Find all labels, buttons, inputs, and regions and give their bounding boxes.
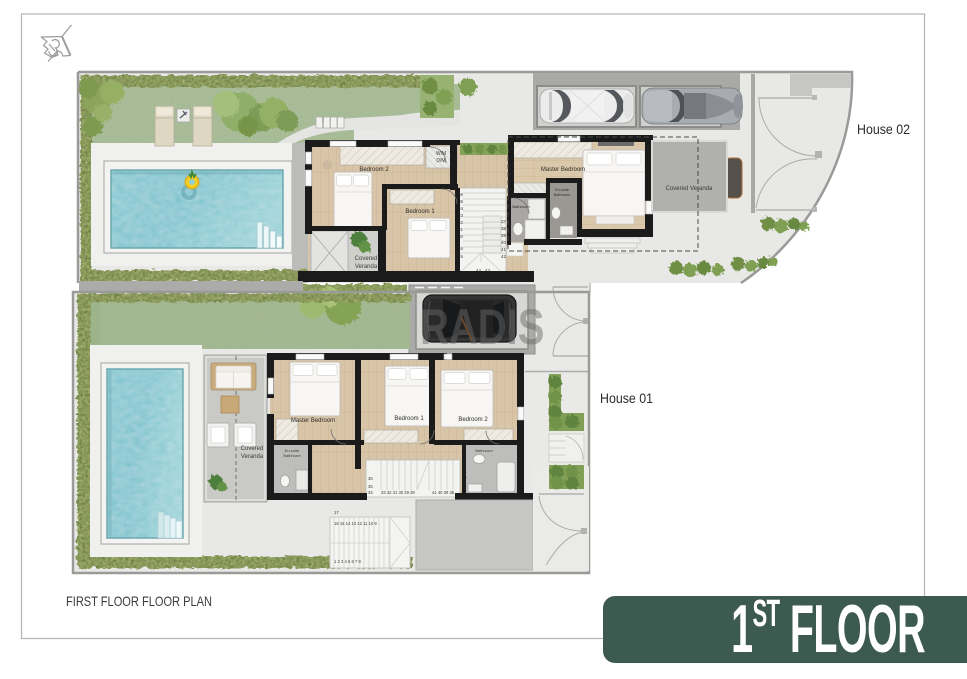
- svg-text:33 32 31 30 29 28: 33 32 31 30 29 28: [381, 490, 415, 495]
- svg-text:34: 34: [368, 490, 373, 495]
- svg-text:42: 42: [501, 254, 507, 259]
- svg-text:36: 36: [368, 476, 373, 481]
- svg-text:Bedroom 1: Bedroom 1: [405, 209, 435, 215]
- svg-text:Veranda: Veranda: [355, 264, 378, 270]
- svg-text:17: 17: [334, 510, 339, 515]
- svg-text:41: 41: [501, 247, 507, 252]
- svg-text:Covered: Covered: [241, 446, 264, 452]
- svg-text:Bedroom 2: Bedroom 2: [359, 167, 389, 173]
- svg-text:1 2 3 4 5 6 7 8: 1 2 3 4 5 6 7 8: [334, 559, 361, 564]
- svg-text:41 40 39 38: 41 40 39 38: [432, 490, 455, 495]
- svg-text:16 15 14 13 12 11 10 9: 16 15 14 13 12 11 10 9: [334, 521, 377, 526]
- svg-text:40: 40: [501, 240, 507, 245]
- svg-text:Bathroom: Bathroom: [475, 448, 493, 453]
- svg-text:Covered: Covered: [355, 256, 378, 262]
- svg-text:37: 37: [501, 219, 507, 224]
- svg-text:Master Bedroom: Master Bedroom: [541, 167, 585, 173]
- svg-text:Master Bedroom: Master Bedroom: [291, 418, 335, 424]
- svg-text:39: 39: [501, 233, 507, 238]
- svg-text:Bedroom 1: Bedroom 1: [394, 416, 424, 422]
- svg-text:Bathroom: Bathroom: [283, 453, 301, 458]
- svg-text:35: 35: [368, 484, 373, 489]
- svg-text:D/M: D/M: [436, 158, 445, 164]
- svg-text:38: 38: [501, 226, 507, 231]
- svg-text:Bathroom: Bathroom: [554, 193, 570, 197]
- svg-text:RADIS: RADIS: [420, 299, 544, 355]
- svg-text:En-suite: En-suite: [555, 188, 569, 192]
- svg-text:Veranda: Veranda: [241, 454, 264, 460]
- svg-text:Bedroom 2: Bedroom 2: [458, 417, 488, 423]
- svg-text:Covered Veranda: Covered Veranda: [666, 186, 713, 192]
- svg-text:House 02: House 02: [857, 122, 910, 137]
- svg-text:FIRST FLOOR FLOOR PLAN: FIRST FLOOR FLOOR PLAN: [66, 593, 212, 609]
- svg-text:House 01: House 01: [600, 391, 653, 406]
